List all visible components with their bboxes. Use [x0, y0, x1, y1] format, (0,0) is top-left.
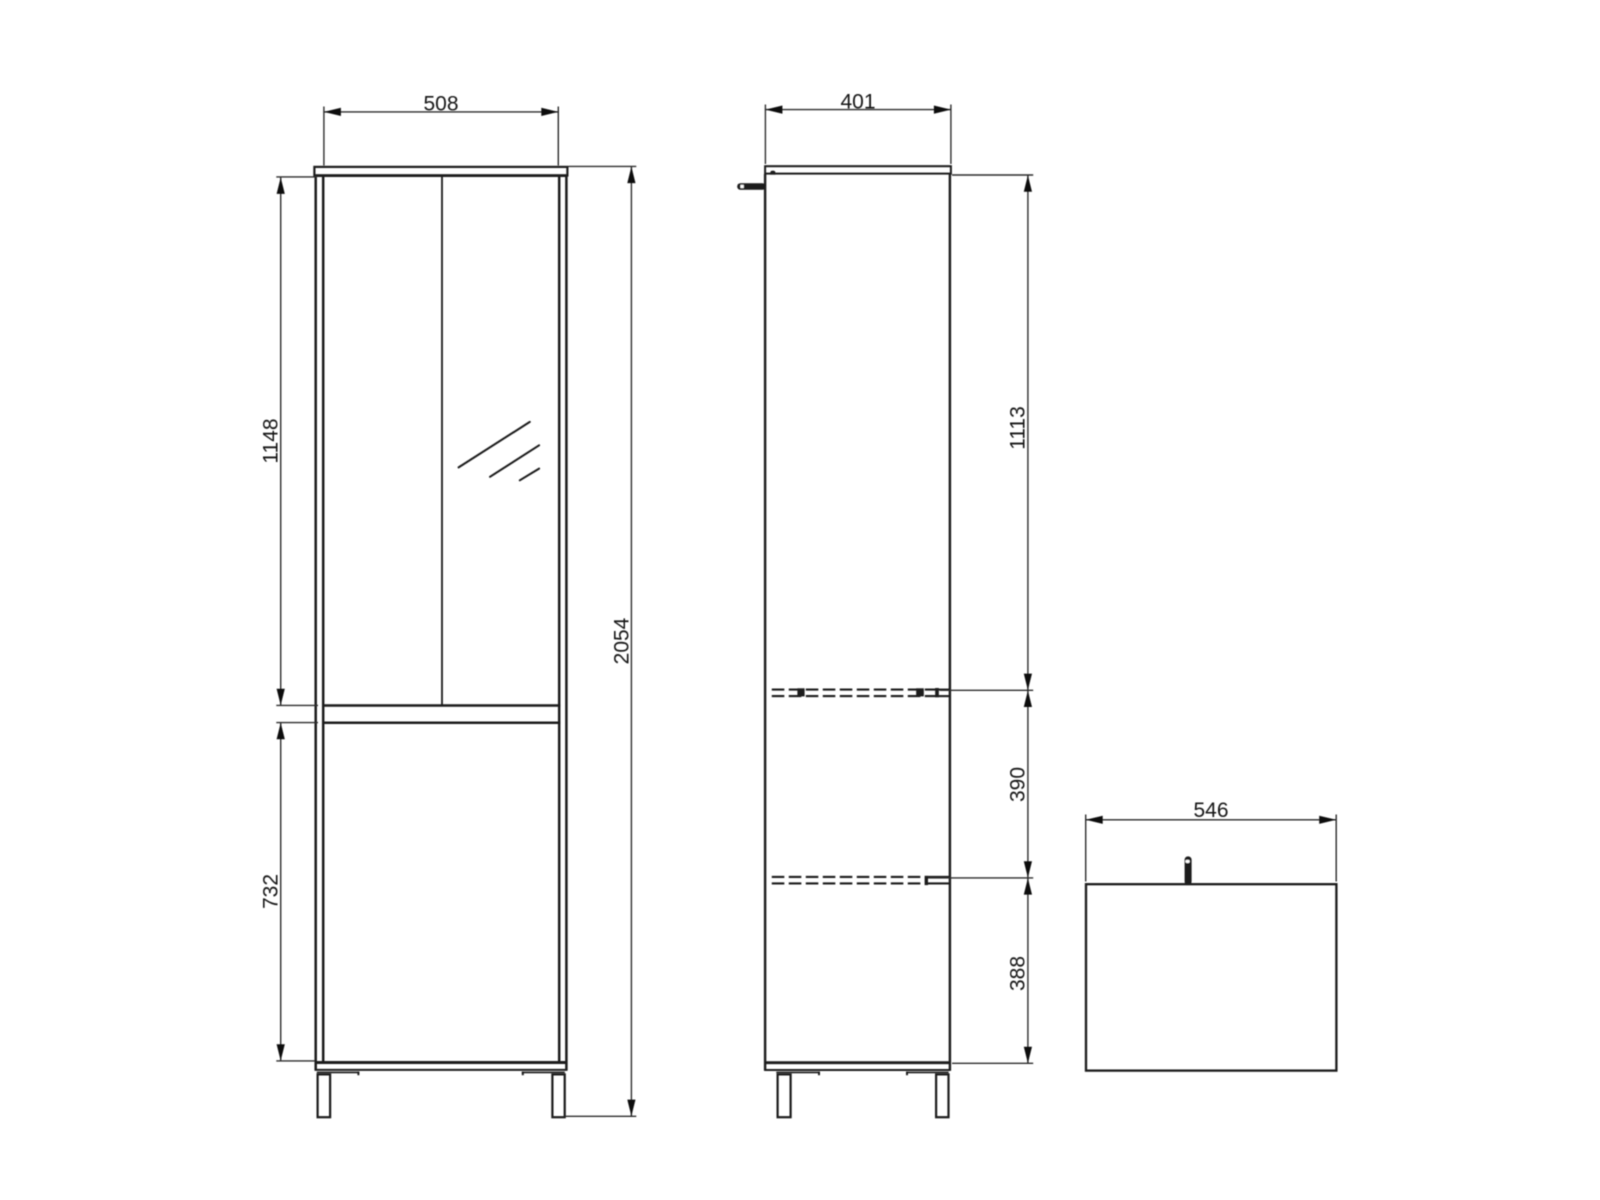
svg-text:1113: 1113	[1006, 406, 1029, 450]
svg-text:390: 390	[1006, 767, 1029, 802]
svg-text:401: 401	[840, 91, 875, 114]
svg-text:2054: 2054	[610, 617, 633, 664]
svg-text:546: 546	[1193, 799, 1228, 822]
svg-text:388: 388	[1006, 956, 1029, 991]
svg-text:1148: 1148	[260, 418, 283, 463]
svg-text:508: 508	[423, 93, 458, 116]
svg-text:732: 732	[260, 874, 283, 909]
